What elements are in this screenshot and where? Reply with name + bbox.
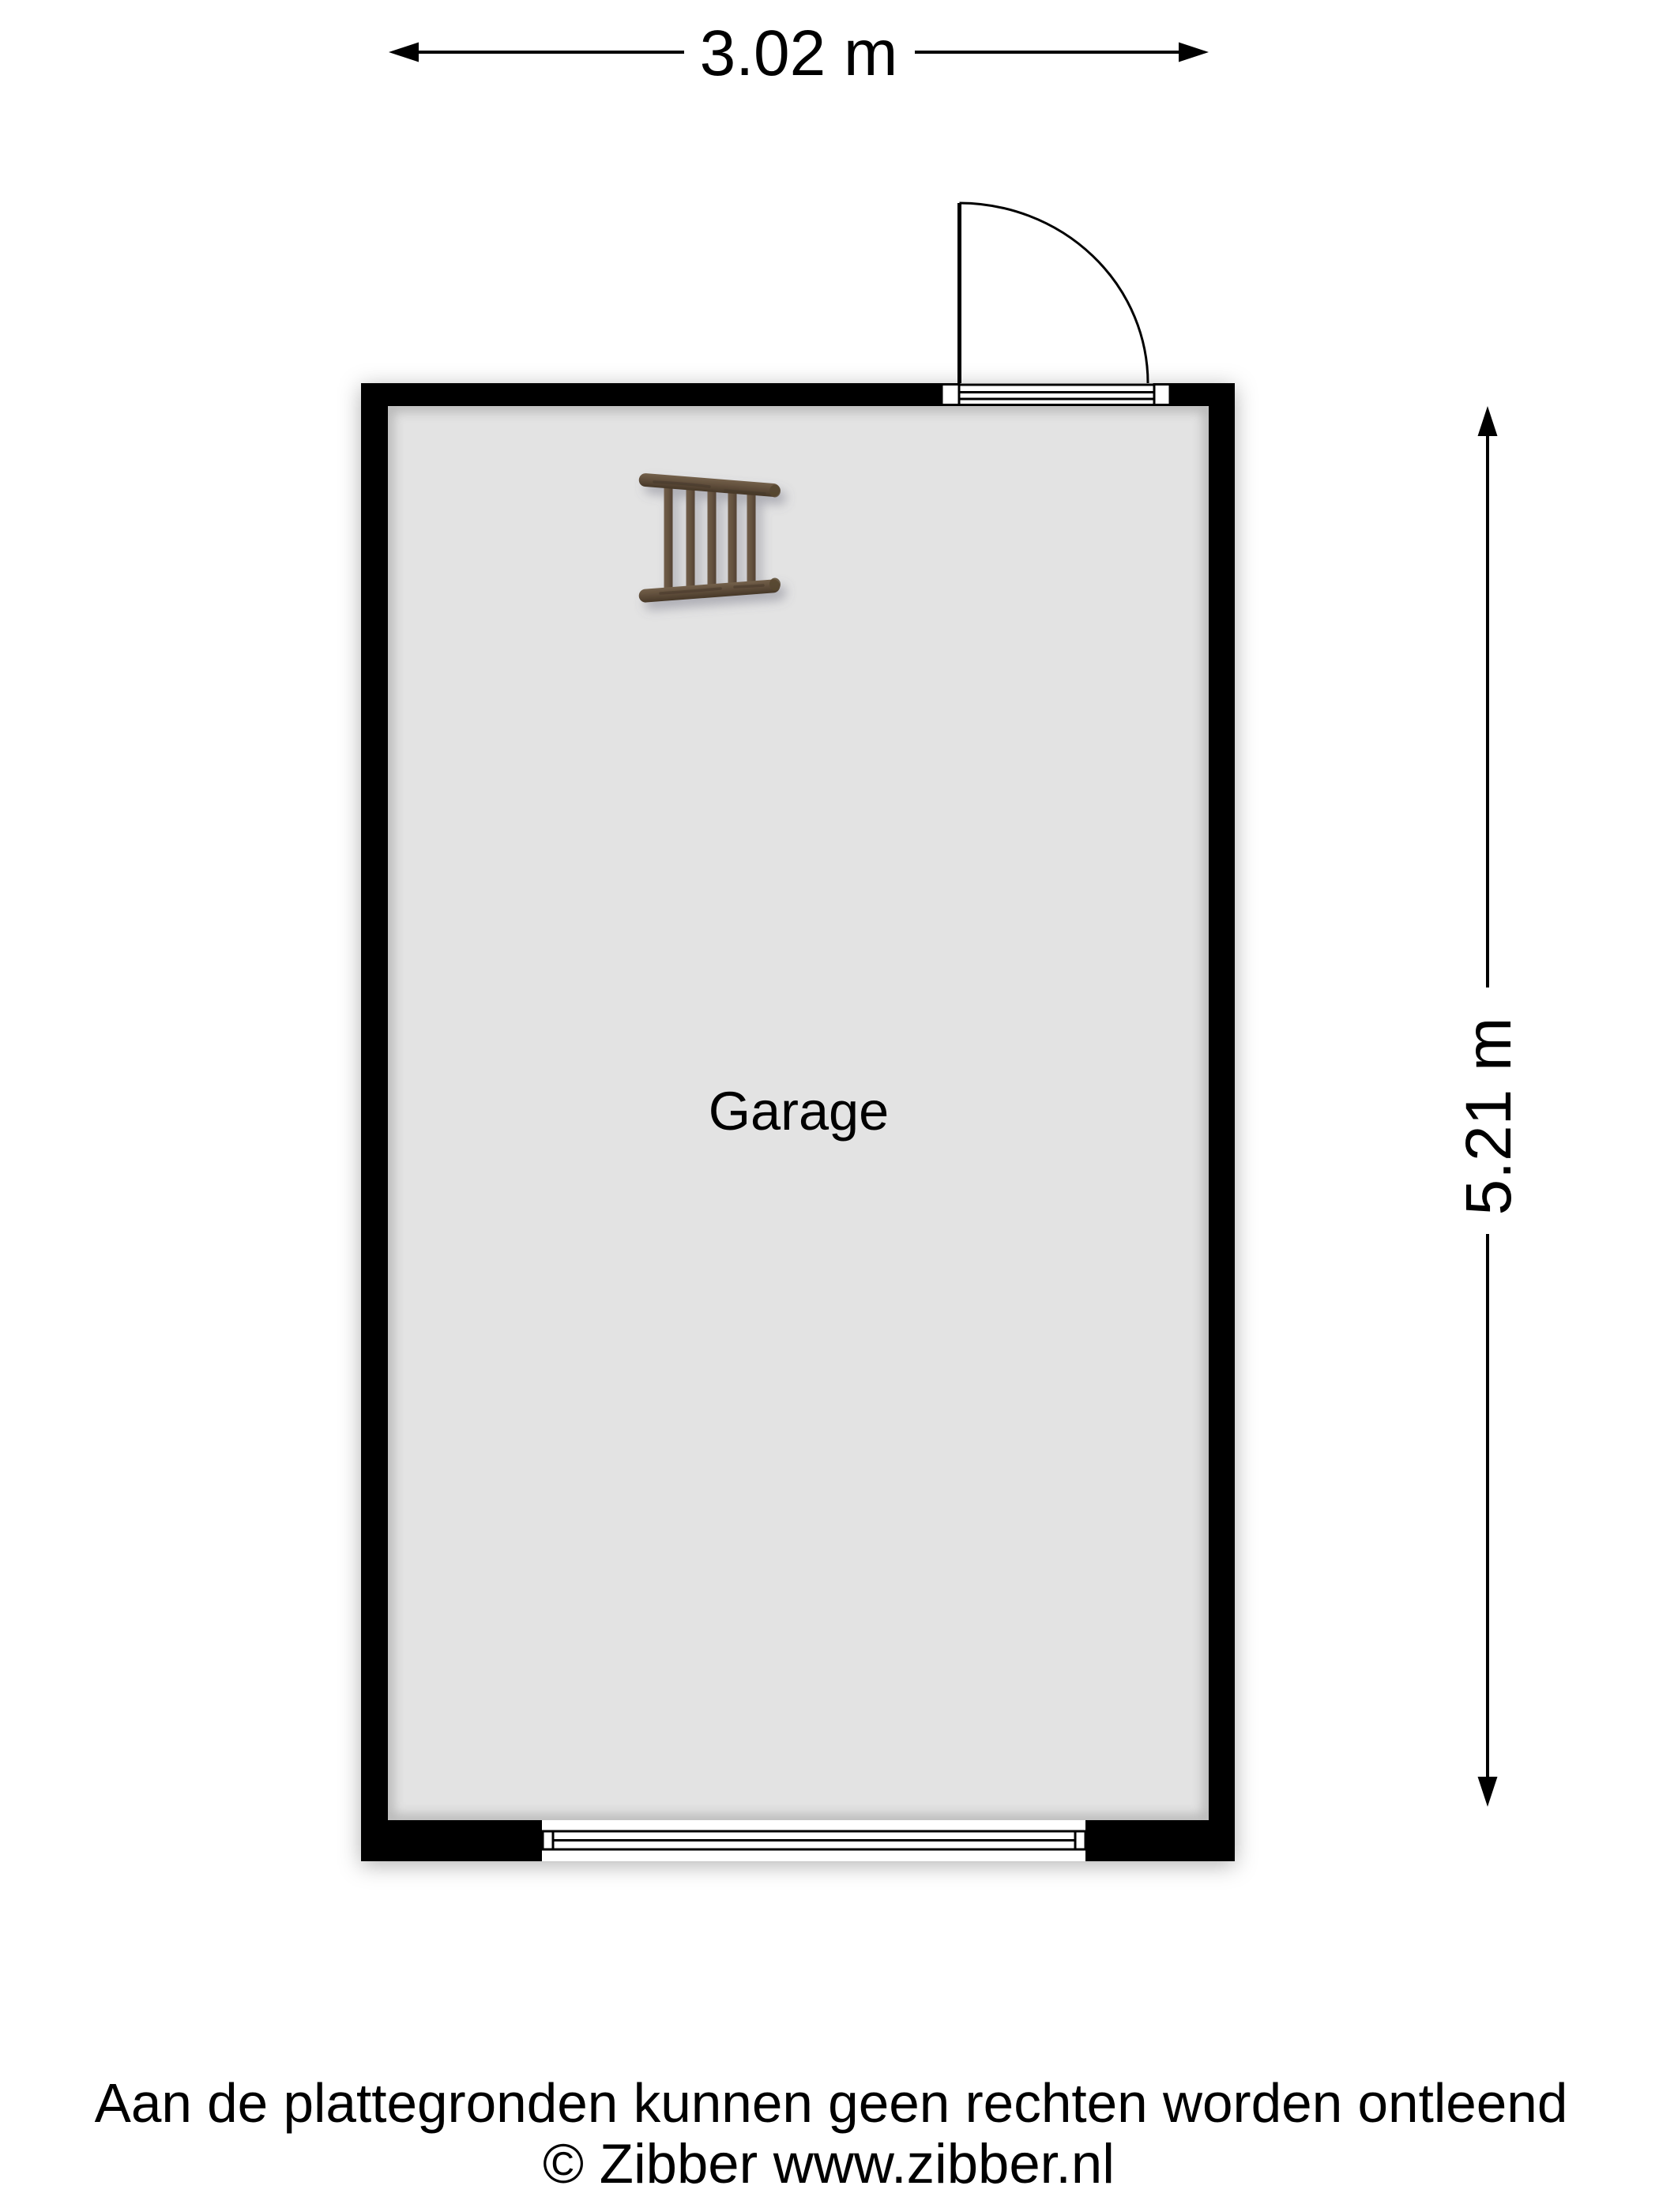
svg-text:5.21 m: 5.21 m [1453, 1018, 1525, 1216]
svg-text:3.02 m: 3.02 m [700, 17, 898, 89]
svg-text:© Zibber www.zibber.nl: © Zibber www.zibber.nl [543, 2132, 1115, 2195]
svg-text:Aan de plattegronden kunnen ge: Aan de plattegronden kunnen geen rechten… [95, 2072, 1568, 2134]
svg-text:Garage: Garage [709, 1081, 889, 1142]
